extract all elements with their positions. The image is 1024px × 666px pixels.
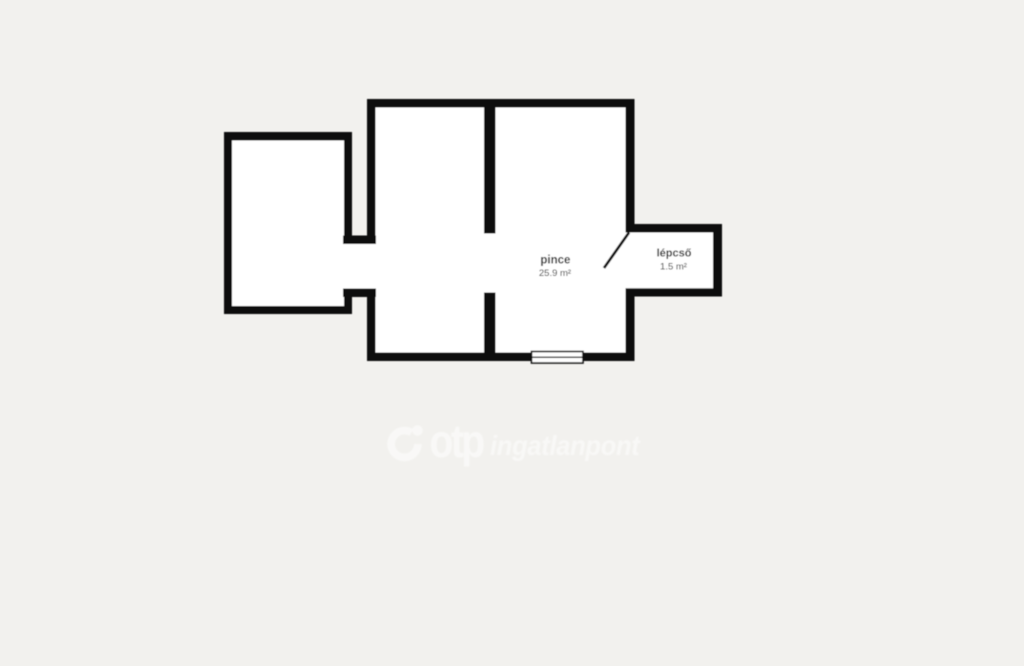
svg-text:1.5 m²: 1.5 m² bbox=[660, 262, 687, 273]
svg-text:25.9 m²: 25.9 m² bbox=[539, 268, 571, 279]
svg-text:ingatlanpont: ingatlanpont bbox=[490, 430, 641, 461]
svg-text:lépcső: lépcső bbox=[657, 248, 692, 260]
svg-text:pince: pince bbox=[540, 254, 570, 266]
svg-text:otp: otp bbox=[430, 416, 485, 468]
